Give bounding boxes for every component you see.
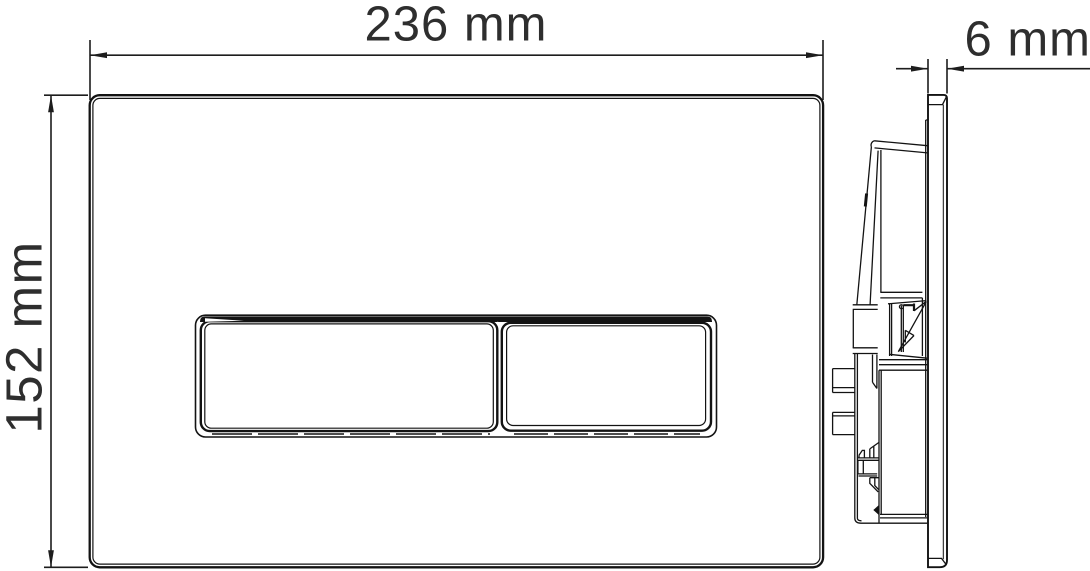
svg-text:6 mm: 6 mm — [965, 13, 1090, 67]
svg-text:236 mm: 236 mm — [364, 0, 547, 52]
svg-text:152 mm: 152 mm — [0, 240, 53, 433]
